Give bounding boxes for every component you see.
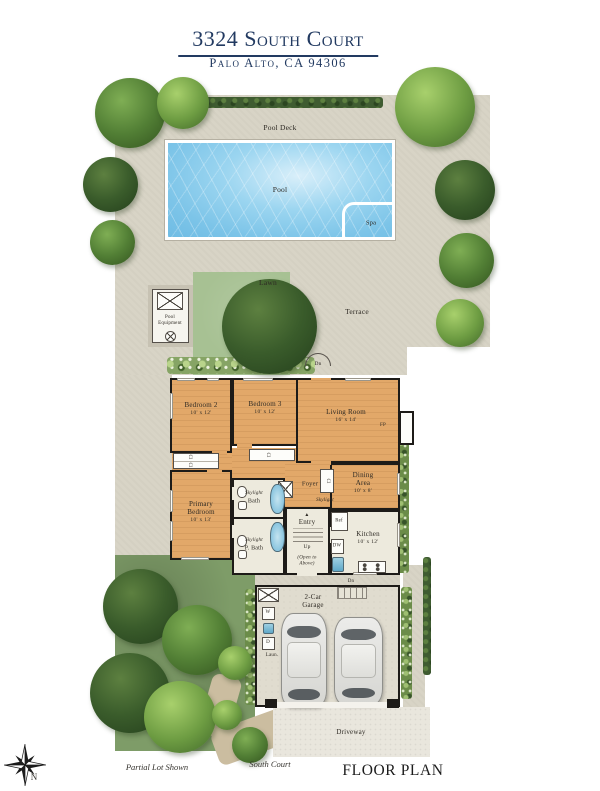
dishwasher-label: DW <box>333 543 341 548</box>
water-heater-xbox-icon <box>258 588 279 602</box>
window <box>177 378 195 381</box>
pbath-skylight-label: Skylight <box>245 538 263 544</box>
window <box>397 523 400 547</box>
closet <box>249 449 295 461</box>
primary-bedroom-label: Primary Bedroom 10' x 13' <box>178 501 224 523</box>
stairs <box>293 528 323 542</box>
property-hedge <box>423 557 431 675</box>
kitchen-dims: 10' x 12' <box>356 539 380 545</box>
window <box>170 521 173 541</box>
closet-label: Cl <box>264 452 270 457</box>
kitchen-label: Kitchen 10' x 12' <box>356 531 380 545</box>
living-room-label: Living Room 16' x 14' <box>326 409 366 423</box>
spa-label: Spa <box>366 219 376 226</box>
kitchen-name: Kitchen <box>356 531 380 539</box>
bedroom3-name: Bedroom 3 <box>248 401 281 409</box>
closet-label: Cl <box>186 462 192 467</box>
living-room-name: Living Room <box>326 409 366 417</box>
bedroom3-dims: 10' x 12' <box>248 409 281 415</box>
car-windshield <box>341 629 377 640</box>
garage-door-jamb <box>387 699 399 708</box>
dining-area-label: Dining Area 10' x 8' <box>347 472 379 494</box>
front-door-opening <box>297 572 317 576</box>
car <box>334 617 383 705</box>
car <box>281 613 327 707</box>
bedroom2-dims: 10' x 12' <box>184 410 217 416</box>
pool-equipment-xbox-icon <box>157 292 183 310</box>
primary-bedroom-name: Primary Bedroom <box>178 501 224 517</box>
bathtub <box>270 522 285 552</box>
closet <box>173 453 219 469</box>
terrace-door-opening <box>311 378 331 381</box>
site-plan: Pool Deck Pool Spa Lawn Terrace Pool Equ… <box>115 95 490 760</box>
entry-up-label: Up <box>303 544 310 550</box>
dryer-label: D <box>266 640 270 646</box>
window <box>243 378 273 381</box>
closet-label: Cl <box>324 478 330 483</box>
back-steps-dn-label: Dn <box>348 579 355 585</box>
bush <box>232 727 268 763</box>
garage-label: 2-Car Garage <box>293 594 333 610</box>
partial-lot-note: Partial Lot Shown <box>126 762 188 772</box>
pool-deck-label: Pool Deck <box>263 124 296 132</box>
tree <box>435 160 495 220</box>
window <box>397 473 400 495</box>
bedroom2-label: Bedroom 2 10' x 12' <box>184 402 217 416</box>
washer-label: W <box>266 610 271 616</box>
door-opening <box>311 461 331 465</box>
garage-door-opening <box>272 702 392 708</box>
window <box>170 490 173 512</box>
back-steps <box>337 587 367 599</box>
terrace-steps-dn-label: Dn <box>314 361 321 367</box>
door-opening <box>232 487 236 500</box>
page: 3324 South Court Palo Alto, CA 94306 <box>0 0 600 791</box>
lawn-label: Lawn <box>259 279 277 287</box>
compass-north-label: N <box>31 772 38 782</box>
laundry-sink <box>263 623 274 634</box>
palm <box>218 646 252 680</box>
car-rear-window <box>342 688 376 698</box>
bath-divider-wall <box>232 517 285 519</box>
window <box>170 393 173 419</box>
tree <box>90 220 135 265</box>
side-planting <box>401 587 412 699</box>
car-roof <box>341 644 377 678</box>
door-opening <box>207 470 222 474</box>
car-rear-window <box>288 689 320 700</box>
car-roof <box>287 642 320 678</box>
lawn-tree <box>222 279 317 374</box>
entry-label: Entry <box>299 519 316 527</box>
pump-icon <box>165 331 176 342</box>
bedroom2-name: Bedroom 2 <box>184 402 217 410</box>
bath-skylight-label: Skylight <box>245 491 263 497</box>
tree <box>436 299 484 347</box>
floor-plan-title: FLOOR PLAN <box>342 762 443 780</box>
car-windshield <box>287 626 320 638</box>
window <box>207 378 219 381</box>
compass-rose-icon <box>2 742 48 788</box>
pbath-label: P. Bath <box>245 546 263 553</box>
garage-door-jamb <box>265 699 277 708</box>
tree <box>144 681 216 753</box>
page-title: 3324 South Court <box>178 26 378 57</box>
foyer-label: Foyer <box>302 480 318 487</box>
terrace-label: Terrace <box>345 308 369 316</box>
street-label: South Court <box>249 759 290 769</box>
window <box>345 378 371 381</box>
foyer-skylight-label: Skylight <box>316 498 334 504</box>
tree <box>157 77 209 129</box>
bedroom3-label: Bedroom 3 10' x 12' <box>248 401 281 415</box>
tree <box>439 233 494 288</box>
side-planting <box>245 589 255 705</box>
page-subtitle: Palo Alto, CA 94306 <box>209 56 346 71</box>
bathtub <box>270 484 285 514</box>
side-path <box>115 375 172 555</box>
sink <box>238 501 247 510</box>
refrigerator-label: Ref <box>335 518 343 523</box>
tree <box>395 67 475 147</box>
driveway-label: Driveway <box>336 729 365 737</box>
pool-label: Pool <box>273 186 288 194</box>
closet-label: Cl <box>186 454 192 459</box>
palm <box>212 700 242 730</box>
tree <box>83 157 138 212</box>
door-opening <box>237 444 252 448</box>
dining-area-name: Dining Area <box>347 472 379 488</box>
bath-label: Bath <box>248 499 260 506</box>
dining-area-dims: 10' x 8' <box>347 488 379 494</box>
kitchen-sink <box>332 557 344 572</box>
door-opening <box>232 525 236 538</box>
window <box>181 557 209 560</box>
tree <box>95 78 165 148</box>
fireplace <box>399 411 414 445</box>
pool-equipment-label: Pool Equipment <box>155 315 185 327</box>
primary-bedroom-dims: 10' x 13' <box>178 517 224 523</box>
living-room-dims: 16' x 14' <box>326 417 366 423</box>
fireplace-label: FP <box>380 423 386 429</box>
entry-open-above-label: (Open to Above) <box>290 555 324 566</box>
laundry-label: Laun. <box>266 653 279 659</box>
stove <box>358 561 386 573</box>
